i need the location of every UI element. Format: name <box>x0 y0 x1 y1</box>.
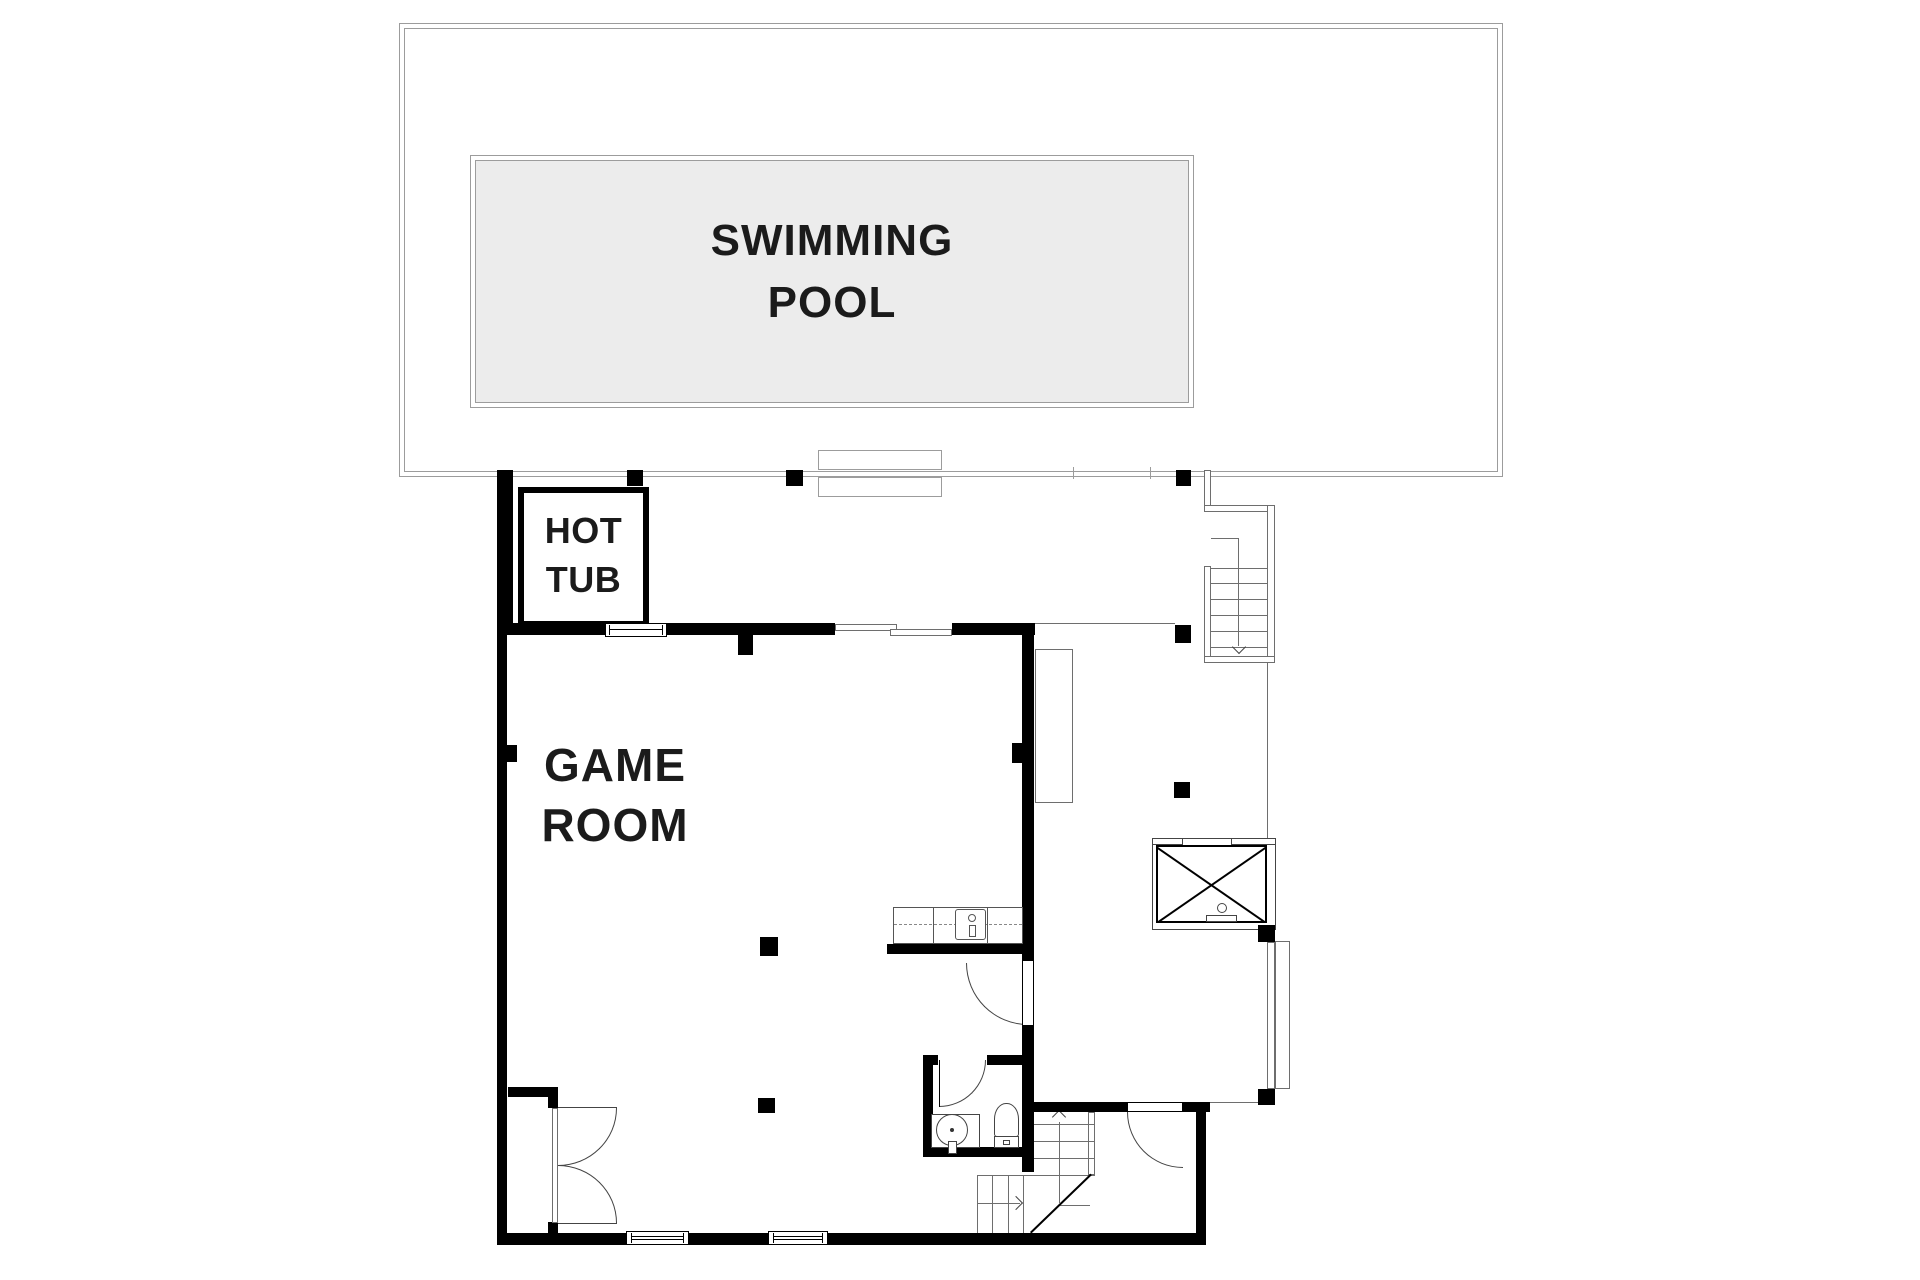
main-stair-rail <box>1088 1112 1095 1175</box>
deck-stair-landing-edge <box>1204 505 1275 512</box>
column-post <box>1012 743 1022 763</box>
top-wall-window <box>605 623 667 637</box>
column-post <box>760 937 778 956</box>
closet-door-swing-arc <box>1127 1112 1183 1168</box>
toilet-flush-button <box>1003 1140 1010 1145</box>
shower-fixture-bracket <box>1206 915 1237 922</box>
stair-tread <box>1034 1124 1095 1125</box>
bar-sink-faucet <box>968 914 976 922</box>
vestibule-wall-tab <box>548 1222 558 1233</box>
closet-top-wall <box>1034 1102 1127 1112</box>
bar-counter-divider <box>987 908 988 943</box>
down-arrow-icon <box>1232 640 1246 654</box>
game-room-top-wall <box>952 623 1035 635</box>
pool-steps-upper <box>818 450 942 470</box>
game-room-bottom-wall <box>689 1233 768 1245</box>
up-arrow-icon <box>1052 1110 1066 1124</box>
stair-break-line <box>1030 1174 1092 1233</box>
side-door-leaf <box>1022 960 1034 1026</box>
stair-direction-line <box>1238 538 1239 646</box>
deck-rail-tick <box>1073 467 1074 479</box>
washbasin-faucet <box>948 1141 957 1154</box>
deck-stair-rail <box>1204 656 1275 663</box>
stair-tread <box>1023 1175 1024 1233</box>
bottom-window <box>626 1231 689 1245</box>
bar-sink-handle <box>969 925 976 937</box>
right-sliding-door-panel <box>1275 941 1290 1089</box>
column-post <box>1258 925 1275 942</box>
top-wall-sliding-door-panel <box>890 629 952 636</box>
right-sliding-door-rail <box>1267 942 1275 1089</box>
stair-tread <box>977 1175 1095 1176</box>
column-post <box>758 1098 775 1113</box>
washbasin-drain <box>950 1128 954 1132</box>
column-post <box>507 745 517 762</box>
stair-tread <box>1211 568 1267 569</box>
french-door-leaf <box>558 1223 617 1224</box>
top-wall-sliding-door-panel <box>835 624 897 631</box>
hallway-right-edge <box>1267 663 1268 838</box>
right-arrow-icon <box>1009 1196 1023 1210</box>
stair-direction-line <box>1059 1122 1060 1203</box>
deck-rail-tick <box>1150 467 1151 479</box>
closet-door-leaf <box>1127 1102 1183 1112</box>
bathroom-door-leaf <box>939 1060 940 1107</box>
stair-tread <box>1211 631 1267 632</box>
hallway-edge-line <box>1035 623 1175 624</box>
bar-nook-wall <box>887 944 1022 954</box>
game-room-left-wall <box>497 622 507 1243</box>
skylight-frame-tab <box>1231 838 1276 845</box>
stair-tread <box>1211 615 1267 616</box>
column-post <box>1258 1089 1275 1105</box>
stair-tread <box>1211 599 1267 600</box>
column-post <box>627 470 643 486</box>
column-post <box>1174 782 1190 798</box>
hot-tub-left-wall <box>497 470 513 635</box>
vestibule-wall <box>508 1087 558 1097</box>
stair-tread <box>992 1175 993 1233</box>
bar-counter-divider <box>933 908 934 943</box>
bathroom-door-swing-arc <box>939 1060 986 1107</box>
stair-tread <box>1211 583 1267 584</box>
french-door-leaf <box>558 1107 617 1108</box>
deck-stair-rail <box>1267 505 1275 663</box>
game-room-right-wall <box>1022 635 1034 962</box>
skylight-frame-tab <box>1152 838 1183 845</box>
stair-tread <box>1058 1205 1090 1206</box>
pool-steps-lower <box>818 477 942 497</box>
game-room-top-wall <box>503 623 605 635</box>
side-door-swing-arc <box>966 963 1028 1025</box>
stair-direction-line <box>1211 538 1238 539</box>
column-post <box>1176 470 1191 486</box>
stair-tread <box>1034 1141 1095 1142</box>
bottom-wall <box>828 1233 1206 1245</box>
bathroom-bottom-wall <box>923 1147 1034 1157</box>
french-door-swing-arc <box>558 1165 617 1223</box>
deck-stair-rail <box>1204 566 1211 663</box>
french-door-swing-arc <box>558 1108 617 1166</box>
stair-tread <box>1008 1175 1009 1233</box>
hallway-edge-line <box>1210 1102 1258 1103</box>
stair-tread <box>1034 1158 1095 1159</box>
closet-right-wall <box>1196 1102 1206 1245</box>
column-post <box>1175 625 1191 643</box>
swimming-pool-label: SWIMMING POOL <box>470 210 1194 334</box>
hallway-console <box>1035 649 1073 803</box>
column-post <box>786 470 803 486</box>
stair-tread <box>977 1175 978 1233</box>
toilet-bowl <box>994 1103 1019 1137</box>
floor-plan: SWIMMING POOL HOT TUB GAME ROOM <box>0 0 1920 1280</box>
bottom-window <box>768 1231 828 1245</box>
game-room-top-wall <box>667 623 835 635</box>
game-room-bottom-wall <box>497 1233 626 1245</box>
shower-fixture-icon <box>1217 903 1227 913</box>
column-post <box>738 635 753 655</box>
hot-tub-label: HOT TUB <box>518 506 649 604</box>
vestibule-wall-tab <box>548 1097 558 1108</box>
bathroom-top-wall <box>987 1055 1022 1065</box>
